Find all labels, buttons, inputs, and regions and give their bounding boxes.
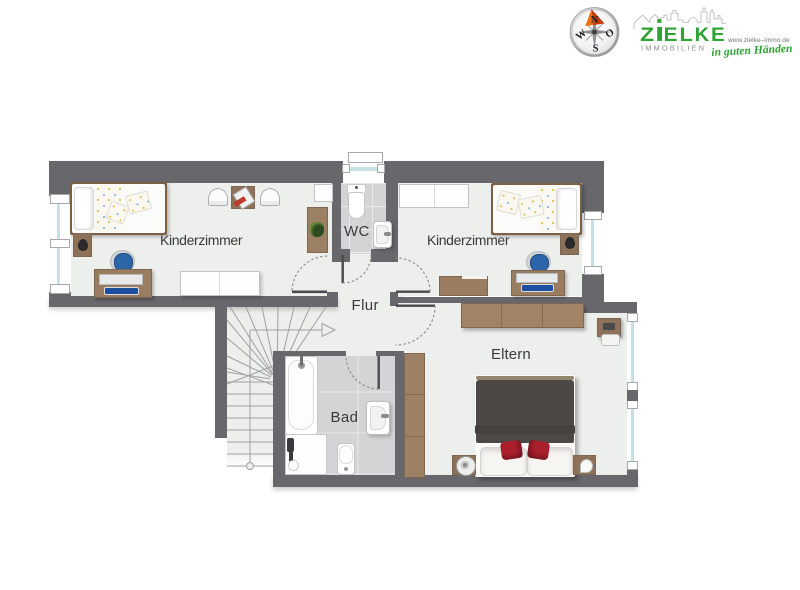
svg-text:E: E bbox=[711, 25, 725, 46]
svg-text:IMMOBILIEN: IMMOBILIEN bbox=[641, 43, 706, 52]
svg-text:S: S bbox=[593, 44, 599, 55]
svg-text:N: N bbox=[591, 15, 599, 26]
